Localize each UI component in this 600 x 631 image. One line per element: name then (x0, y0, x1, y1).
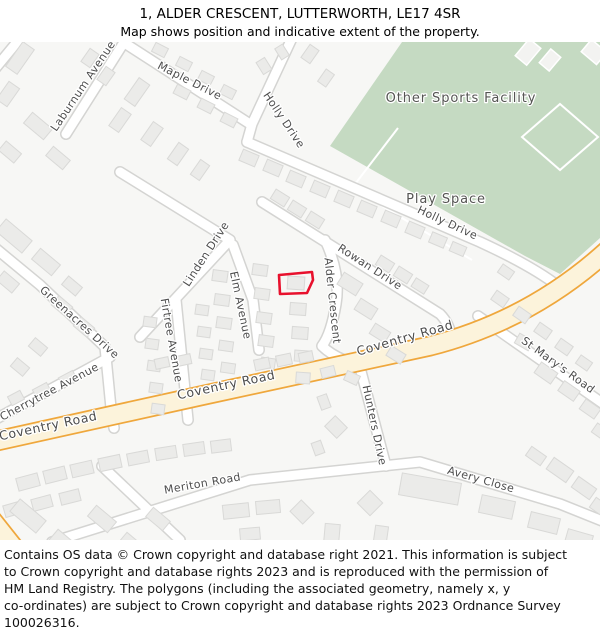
street-label-greenacres-drive: Greenacres Drive (37, 283, 122, 361)
page-subtitle: Map shows position and indicative extent… (0, 23, 600, 40)
area-label-play-space: Play Space (406, 192, 486, 207)
building (28, 338, 47, 357)
building (43, 466, 67, 484)
building (528, 512, 561, 535)
building (218, 340, 233, 352)
building (216, 317, 232, 330)
building (534, 322, 553, 340)
building (70, 460, 94, 478)
building (195, 304, 209, 316)
map-canvas[interactable]: Laburnum Avenue Maple Drive Holly Drive … (0, 42, 600, 540)
copyright-line: co-ordinates) are subject to Crown copyr… (4, 597, 596, 614)
building (318, 69, 335, 87)
building (525, 446, 546, 465)
building (98, 454, 122, 471)
street-label-laburnum-avenue: Laburnum Avenue (48, 42, 118, 134)
building (258, 335, 274, 348)
building (145, 338, 159, 350)
building (155, 445, 178, 460)
building (16, 473, 41, 491)
building (555, 338, 574, 356)
building (428, 232, 447, 248)
copyright-line: to Crown copyright and database rights 2… (4, 563, 596, 580)
building (255, 499, 280, 514)
building (46, 146, 71, 169)
building (286, 170, 306, 188)
building (571, 476, 596, 499)
building (317, 394, 331, 411)
copyright-line: Contains OS data © Crown copyright and d… (4, 546, 596, 563)
building (290, 500, 314, 524)
building (109, 108, 131, 133)
building (0, 81, 20, 106)
building (62, 276, 83, 296)
copyright-notice: Contains OS data © Crown copyright and d… (0, 540, 600, 631)
building (141, 122, 163, 147)
building (479, 495, 516, 520)
building (151, 403, 165, 415)
street-label-hunters-drive: Hunters Drive (360, 384, 390, 466)
building (212, 270, 228, 283)
building (546, 457, 574, 482)
copyright-line: HM Land Registry. The polygons (includin… (4, 580, 596, 597)
building (190, 159, 209, 180)
building (449, 241, 467, 256)
building (373, 525, 388, 540)
building (324, 523, 341, 540)
building (276, 353, 293, 367)
building (591, 423, 600, 441)
page-title: 1, ALDER CRESCENT, LUTTERWORTH, LE17 4SR (0, 5, 600, 23)
building (491, 290, 510, 308)
area-label-other-sports-facility: Other Sports Facility (386, 91, 537, 106)
building (32, 248, 61, 275)
building (256, 57, 272, 74)
building (357, 490, 382, 515)
building (252, 264, 268, 277)
building (254, 288, 270, 301)
building (405, 221, 425, 239)
building (0, 219, 32, 253)
primary-road-coventry (0, 248, 600, 540)
building (298, 351, 314, 364)
building (31, 495, 53, 512)
building (296, 372, 311, 384)
building (256, 312, 272, 325)
building (149, 382, 163, 394)
building (354, 298, 378, 320)
building (287, 276, 305, 290)
street-label-holly-drive-top: Holly Drive (260, 90, 307, 151)
building (124, 78, 150, 107)
building (311, 440, 325, 456)
map-header: 1, ALDER CRESCENT, LUTTERWORTH, LE17 4SR… (0, 0, 600, 42)
building (154, 357, 170, 370)
building (183, 442, 205, 457)
building (565, 529, 594, 540)
building (292, 326, 309, 339)
building (143, 316, 157, 328)
building (575, 355, 592, 371)
building (290, 302, 307, 315)
building (127, 450, 150, 466)
building (214, 294, 230, 307)
building (10, 358, 29, 377)
building (210, 439, 231, 453)
building (497, 264, 514, 280)
building (197, 326, 211, 338)
building (119, 532, 146, 540)
building (220, 362, 235, 374)
building (0, 141, 22, 163)
building (222, 503, 249, 520)
building (240, 527, 261, 540)
building (301, 44, 319, 63)
building (199, 348, 213, 360)
building (0, 271, 20, 293)
building (167, 142, 188, 165)
map-svg: Laburnum Avenue Maple Drive Holly Drive … (0, 42, 600, 540)
building (59, 489, 81, 505)
building (325, 416, 348, 439)
copyright-line: 100026316. (4, 614, 596, 631)
